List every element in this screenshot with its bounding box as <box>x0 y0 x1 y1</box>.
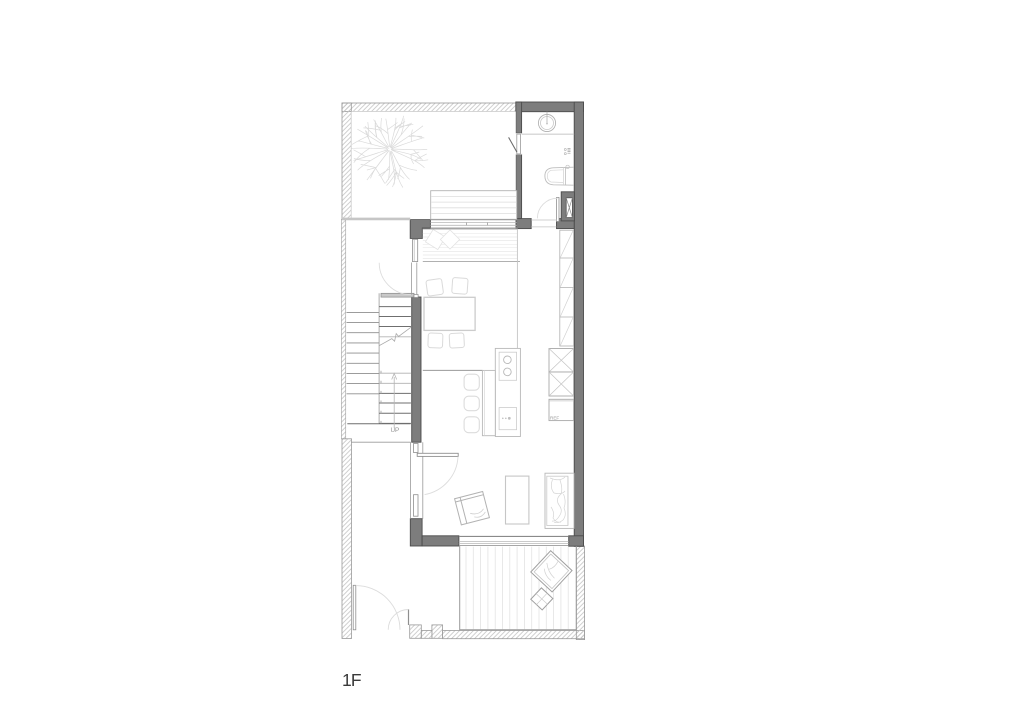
svg-text:UP: UP <box>391 427 400 434</box>
svg-text:1F: 1F <box>342 670 361 690</box>
svg-text:REF: REF <box>550 415 559 420</box>
